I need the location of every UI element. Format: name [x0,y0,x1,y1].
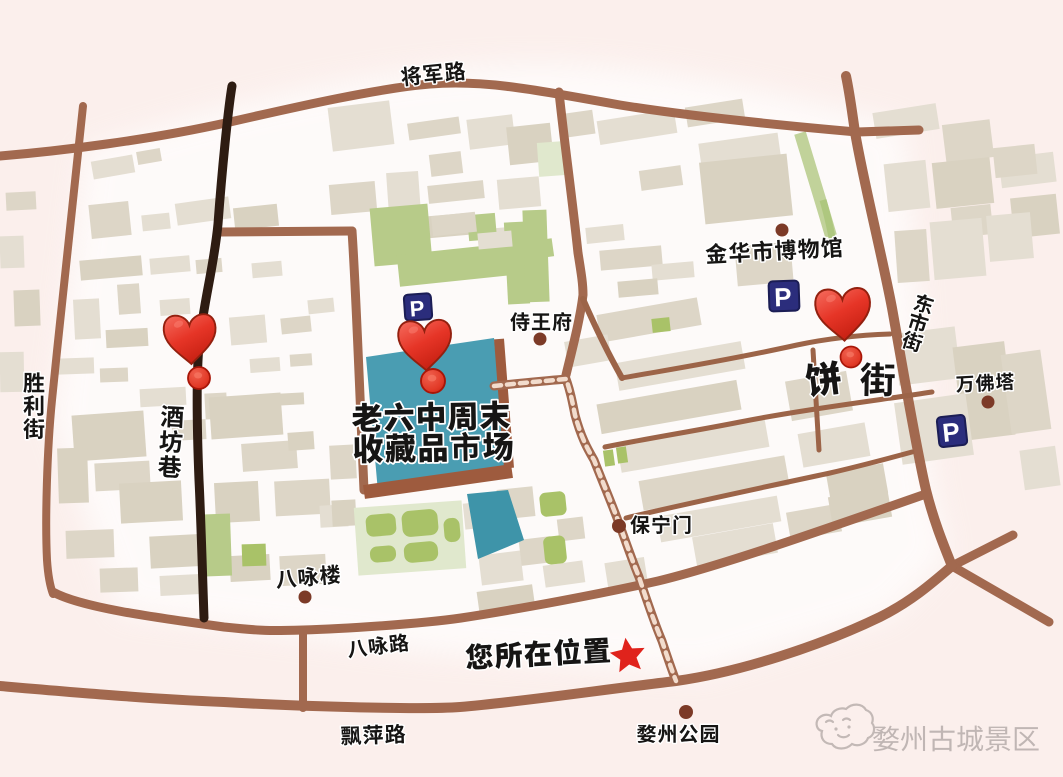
svg-text:P: P [774,282,792,313]
svg-text:P: P [941,416,961,448]
svg-text:P: P [409,296,425,322]
